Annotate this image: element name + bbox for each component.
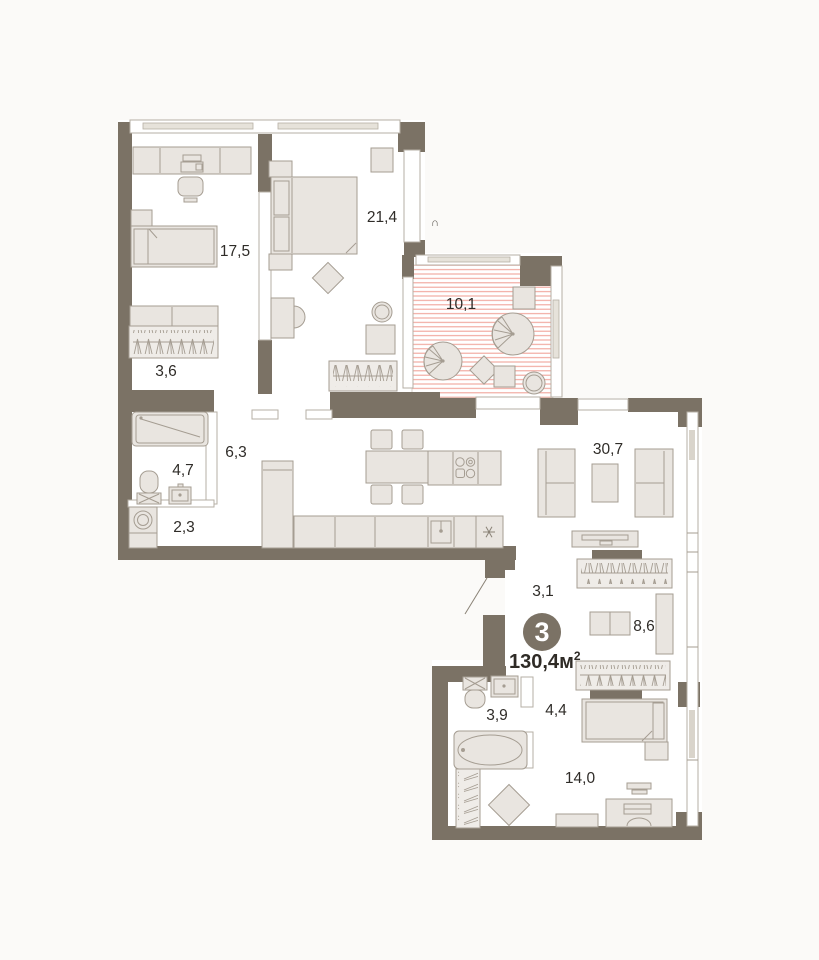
window-sill	[689, 710, 695, 758]
window-wall-right	[687, 412, 698, 826]
laundry-fixtures	[129, 507, 157, 548]
round-lounge-chair	[424, 342, 462, 380]
chair	[371, 485, 392, 504]
bathtub-oval	[454, 731, 527, 769]
room-area-label-laundry: 2,3	[173, 519, 195, 536]
dining-table	[366, 451, 428, 483]
armchair	[366, 325, 395, 354]
sink	[491, 676, 518, 697]
sink	[169, 484, 191, 504]
desk	[606, 799, 672, 827]
cabinet-tall	[262, 461, 293, 548]
dresser	[610, 612, 630, 635]
tv-console	[572, 531, 638, 547]
room-area-label-hall-small: 4,4	[545, 702, 567, 719]
round-lounge-chair	[492, 313, 534, 355]
room-area-label-bedroom-kids: 17,5	[220, 243, 250, 260]
hallway-furniture	[262, 461, 293, 548]
sofa	[635, 449, 673, 517]
window-sill	[689, 430, 695, 460]
sofa	[538, 449, 575, 517]
window-vent-icon: ∩	[431, 217, 439, 229]
wardrobe-hangers	[577, 559, 672, 588]
nightstand	[131, 210, 152, 226]
bed	[582, 699, 667, 742]
cabinet-tall	[656, 594, 673, 654]
nightstand	[269, 254, 292, 270]
balcony-door-living	[476, 397, 540, 409]
room-area-label-bathroom-main: 4,7	[172, 462, 194, 479]
partition-bathroom2	[521, 677, 533, 707]
window-sill	[143, 123, 253, 129]
chair	[402, 485, 423, 504]
wardrobe-hangers	[329, 361, 397, 391]
dresser	[590, 612, 610, 635]
window	[404, 150, 420, 242]
total-area-value: 130,4	[509, 651, 560, 673]
nightstand	[645, 742, 668, 760]
pouf-square	[494, 366, 515, 387]
shoe-rack	[456, 769, 480, 828]
room-area-label-hallway: 6,3	[225, 444, 247, 461]
washing-machine	[129, 507, 157, 548]
vanity-table	[271, 298, 294, 338]
shelf	[130, 306, 218, 327]
room-area-label-living-kitchen: 30,7	[593, 441, 623, 458]
floor-plan-svg: ∩	[0, 0, 819, 960]
coffee-table	[592, 464, 618, 502]
door-threshold	[252, 410, 278, 419]
window	[578, 399, 628, 410]
monitor	[183, 155, 201, 161]
pillow	[653, 703, 664, 739]
stool	[371, 148, 393, 172]
door-threshold	[306, 410, 332, 419]
floor-plan-canvas: ∩	[0, 0, 819, 960]
balcony-door-bedroom	[403, 277, 413, 388]
room-area-label-balcony: 10,1	[446, 296, 476, 313]
rooms-count: 3	[534, 617, 549, 647]
room-area-label-bathroom-second: 3,9	[486, 707, 508, 724]
fridge-icon	[476, 516, 503, 548]
pillow	[134, 229, 148, 264]
bench	[556, 814, 598, 827]
chair	[402, 430, 423, 449]
chair	[371, 430, 392, 449]
room-area-label-wardrobe-hall: 8,6	[633, 618, 655, 635]
room-area-label-bedroom-third: 14,0	[565, 770, 596, 787]
window-sill	[278, 123, 378, 129]
pillow	[274, 217, 289, 251]
monitor	[627, 783, 651, 789]
entrance-door-swing	[465, 578, 487, 614]
wardrobe-hangers	[576, 661, 670, 690]
nightstand	[269, 161, 292, 177]
office-chair	[178, 177, 203, 196]
toilet	[137, 471, 161, 504]
total-area: 130,4м2	[509, 649, 581, 673]
room-area-label-wardrobe-kids: 3,6	[155, 363, 177, 380]
room-area-label-corridor: 3,1	[532, 583, 554, 600]
total-area-unit: м	[559, 651, 574, 673]
total-area-sup: 2	[574, 649, 581, 663]
bathtub	[132, 412, 208, 446]
wardrobe-hangers	[129, 326, 218, 358]
toilet	[463, 677, 487, 708]
pouf-square	[513, 287, 535, 309]
pillow	[274, 181, 289, 215]
room-area-label-bedroom-master: 21,4	[367, 209, 398, 226]
kitchen-island	[428, 451, 501, 485]
